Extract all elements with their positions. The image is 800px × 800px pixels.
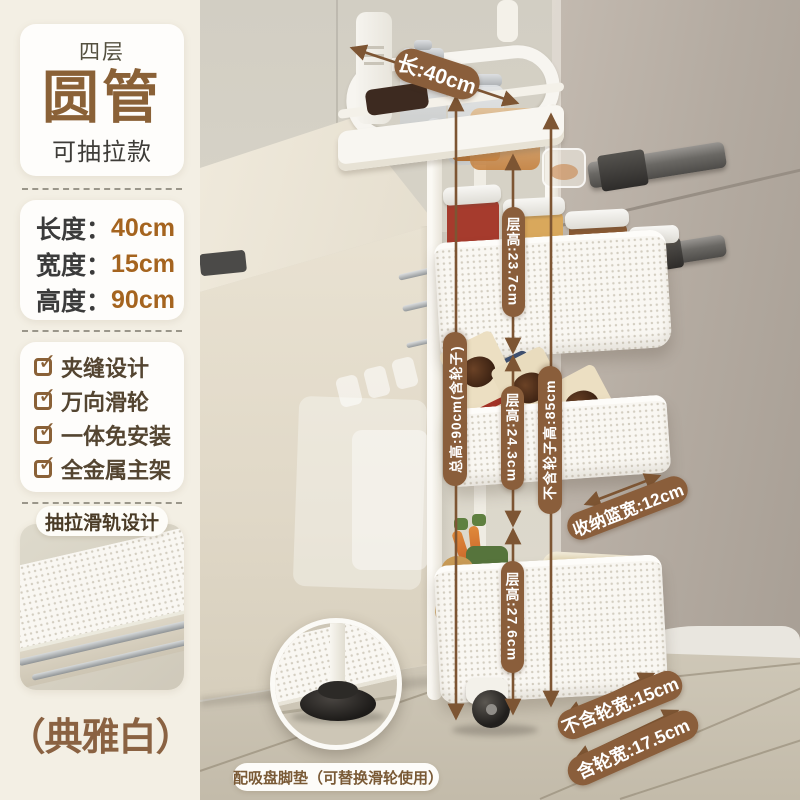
checkbox-icon: ✓ <box>34 358 52 376</box>
dimension-row: 宽度： 15cm <box>36 246 184 282</box>
badge-title: 圆管 <box>20 66 184 132</box>
footpad-inset-circle <box>270 618 402 750</box>
feature-item: ✓ 万向滑轮 <box>34 384 184 418</box>
label-height-no-wheels: 不含轮子高:85cm <box>538 366 562 514</box>
pulled-basket-ghost-inner <box>352 430 428 570</box>
dimension-label: 宽度： <box>36 246 111 282</box>
carrot-greens <box>454 518 468 530</box>
label-tier1-height: 层高:23.7cm <box>502 207 525 317</box>
dimension-row: 长度： 40cm <box>36 210 184 246</box>
dashed-divider <box>22 188 182 190</box>
dimension-value: 40cm <box>111 214 175 243</box>
product-badge-card: 四层 圆管 可抽拉款 <box>20 24 184 176</box>
dimension-label: 高度： <box>36 282 111 318</box>
feature-label: 全金属主架 <box>61 453 171 485</box>
checkbox-icon: ✓ <box>34 426 52 444</box>
feature-label: 万向滑轮 <box>61 385 149 417</box>
info-sidebar: 四层 圆管 可抽拉款 长度： 40cm 宽度： 15cm 高度： 90cm ✓ … <box>0 0 200 800</box>
carrot-greens <box>472 514 486 526</box>
dimension-value: 15cm <box>111 250 175 279</box>
product-infographic: DINKEL 长:40cm 总高:90cm(含轮子) 层高:23.7cm 层高:… <box>0 0 800 800</box>
caster-hub <box>486 704 497 715</box>
badge-tier-count: 四层 <box>20 36 184 66</box>
glass-cup <box>542 148 586 188</box>
slide-design-photo <box>20 524 184 690</box>
feature-item: ✓ 全金属主架 <box>34 452 184 486</box>
dashed-divider <box>22 330 182 332</box>
feature-item: ✓ 夹缝设计 <box>34 350 184 384</box>
slide-design-title: 抽拉滑轨设计 <box>36 506 168 536</box>
dimension-row: 高度： 90cm <box>36 282 184 318</box>
checkbox-icon: ✓ <box>34 460 52 478</box>
dashed-divider <box>22 502 182 504</box>
cart-rear-pole-top <box>497 0 518 42</box>
dimension-value: 90cm <box>111 286 175 315</box>
canister-lid <box>565 208 630 229</box>
glass-jar-knob <box>414 40 432 50</box>
label-tier2-height: 层高:24.3cm <box>501 386 524 490</box>
footpad-caption: 配吸盘脚垫（可替换滑轮使用） <box>233 763 439 791</box>
features-card: ✓ 夹缝设计 ✓ 万向滑轮 ✓ 一体免安装 ✓ 全金属主架 <box>20 342 184 492</box>
badge-subtitle: 可抽拉款 <box>20 132 184 167</box>
dimension-label: 长度： <box>36 210 111 246</box>
feature-item: ✓ 一体免安装 <box>34 418 184 452</box>
feature-label: 夹缝设计 <box>61 351 149 383</box>
label-tier3-height: 层高:27.6cm <box>501 561 524 673</box>
fridge-handle-mount <box>597 149 649 192</box>
dimensions-card: 长度： 40cm 宽度： 15cm 高度： 90cm <box>20 200 184 320</box>
suction-pad-cap <box>318 681 358 699</box>
feature-label: 一体免安装 <box>61 419 171 451</box>
color-variant-name: （典雅白） <box>0 706 200 761</box>
checkbox-icon: ✓ <box>34 392 52 410</box>
label-total-height: 总高:90cm(含轮子) <box>443 332 467 486</box>
